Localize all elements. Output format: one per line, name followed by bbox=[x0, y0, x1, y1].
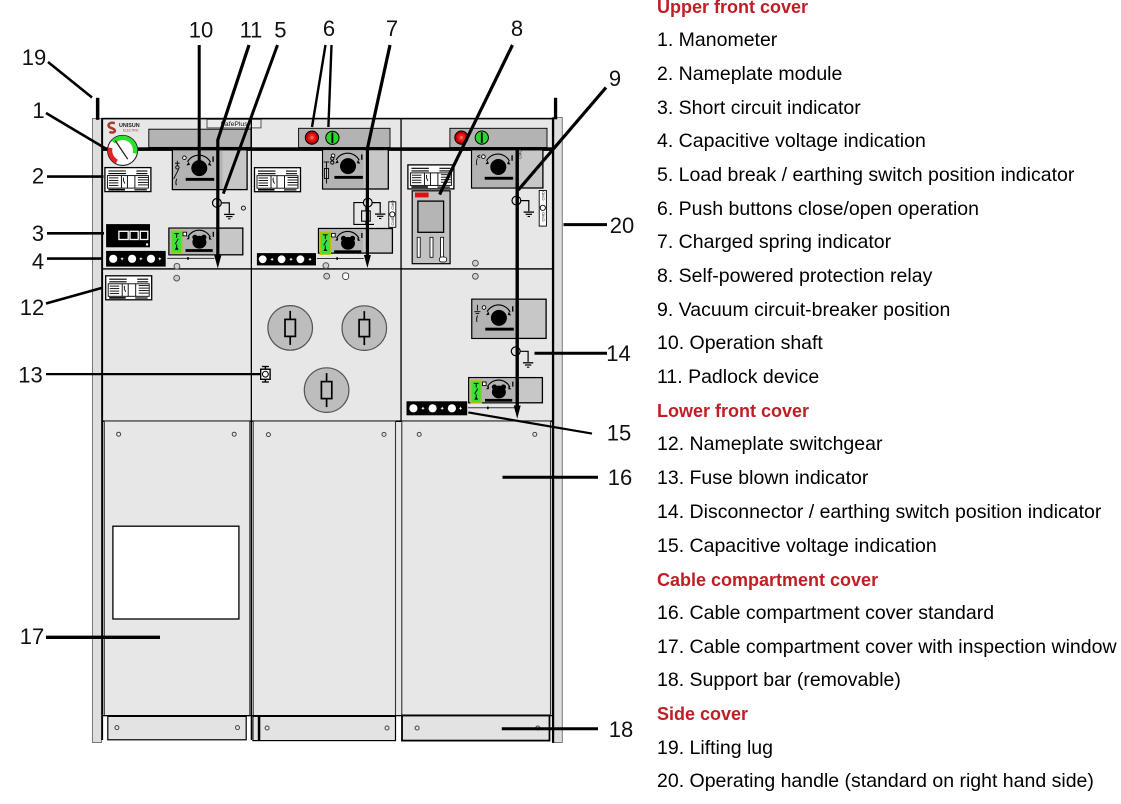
svg-text:CMO: CMO bbox=[540, 191, 545, 200]
svg-text:4: 4 bbox=[32, 249, 44, 274]
svg-text:3: 3 bbox=[32, 221, 44, 246]
svg-text:CMO: CMO bbox=[390, 200, 395, 209]
svg-text:12: 12 bbox=[20, 295, 44, 320]
svg-text:17: 17 bbox=[20, 624, 44, 649]
svg-text:7: 7 bbox=[386, 16, 398, 41]
svg-text:10: 10 bbox=[189, 18, 213, 43]
svg-text:ELECTRIC: ELECTRIC bbox=[123, 128, 139, 132]
svg-text:1: 1 bbox=[32, 98, 44, 123]
svg-text:CMO: CMO bbox=[540, 212, 545, 221]
svg-text:13: 13 bbox=[18, 363, 42, 388]
svg-text:8: 8 bbox=[511, 16, 523, 41]
svg-text:15: 15 bbox=[607, 421, 631, 446]
svg-text:CMO: CMO bbox=[390, 216, 395, 225]
svg-text:5: 5 bbox=[274, 18, 286, 43]
svg-text:9: 9 bbox=[609, 66, 621, 91]
svg-text:14: 14 bbox=[606, 341, 630, 366]
svg-text:11: 11 bbox=[240, 18, 263, 43]
svg-text:19: 19 bbox=[22, 45, 46, 70]
svg-text:2: 2 bbox=[32, 164, 44, 189]
svg-text:20: 20 bbox=[610, 213, 634, 238]
svg-text:16: 16 bbox=[608, 465, 632, 490]
svg-text:18: 18 bbox=[609, 717, 633, 742]
svg-text:6: 6 bbox=[323, 16, 335, 41]
